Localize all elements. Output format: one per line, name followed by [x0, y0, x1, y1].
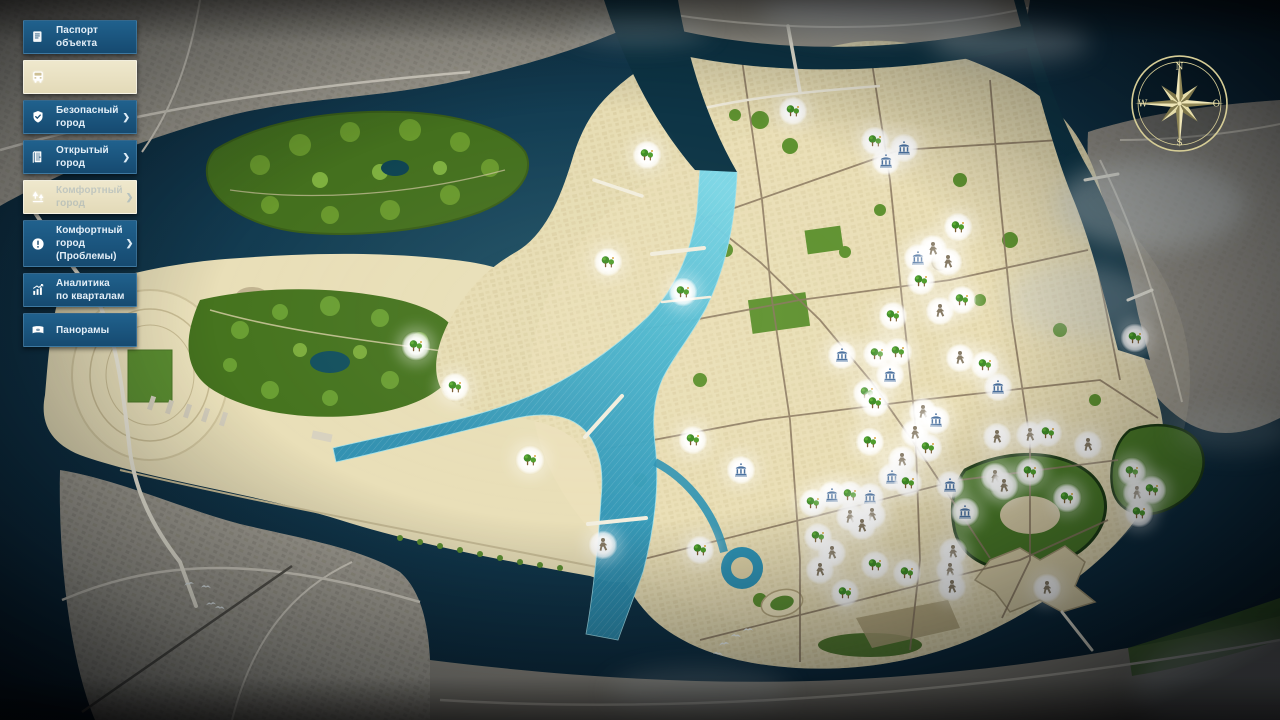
chevron-right-icon: ❯ — [123, 192, 135, 203]
compass-west-label: W — [1138, 100, 1148, 110]
panorama-icon — [31, 321, 51, 339]
map-marker-tree[interactable] — [515, 445, 545, 475]
map-marker-tree[interactable] — [778, 96, 808, 126]
compass-east-label: O — [1213, 100, 1220, 110]
map-marker-tree[interactable] — [906, 266, 936, 296]
map-marker-tree[interactable] — [668, 277, 698, 307]
map-marker-pavilion[interactable] — [950, 497, 980, 527]
map-marker-tree[interactable] — [1052, 483, 1082, 513]
trees-icon — [31, 188, 51, 206]
map-marker-tree[interactable] — [893, 468, 923, 498]
bus-icon — [31, 68, 51, 86]
sidebar-item-label: Комфортный город(Проблемы) — [51, 224, 123, 263]
bar-chart-icon — [31, 281, 51, 299]
shield-check-icon — [31, 108, 51, 126]
compass: N W O S — [1129, 53, 1230, 154]
sidebar-item-comfort-city[interactable]: Комфортный город❯ — [23, 180, 137, 214]
map-marker-person[interactable] — [847, 511, 877, 541]
map-marker-person[interactable] — [925, 296, 955, 326]
map-marker-tree[interactable] — [440, 372, 470, 402]
map-marker-person[interactable] — [1073, 430, 1103, 460]
bird-icon — [214, 603, 227, 612]
map-marker-pavilion[interactable] — [935, 470, 965, 500]
sidebar-item-object-passport[interactable]: Паспорт объекта — [23, 20, 137, 54]
map-marker-tree[interactable] — [678, 425, 708, 455]
open-door-icon — [31, 148, 51, 166]
map-marker-tree[interactable] — [401, 331, 431, 361]
sidebar: Паспорт объектаБезопасный город❯Открытый… — [23, 20, 137, 347]
sidebar-item-label: Безопасный город — [51, 104, 119, 130]
bird-icon — [711, 649, 724, 658]
sidebar-item-safe-city[interactable]: Безопасный город❯ — [23, 100, 137, 134]
sidebar-item-analytics-by-blocks[interactable]: Аналитикапо кварталам — [23, 273, 137, 307]
compass-south-label: S — [1176, 138, 1182, 148]
map-marker-tree[interactable] — [860, 388, 890, 418]
map-marker-person[interactable] — [1032, 573, 1062, 603]
sidebar-item-label: Комфортный город — [51, 184, 123, 210]
bird-icon — [200, 582, 213, 590]
map-marker-tree[interactable] — [943, 212, 973, 242]
sidebar-item-comfort-city-problems[interactable]: Комфортный город(Проблемы)❯ — [23, 220, 137, 267]
sidebar-item-label: Аналитикапо кварталам — [51, 277, 131, 303]
compass-north-label: N — [1176, 63, 1184, 73]
map-marker-person[interactable] — [588, 530, 618, 560]
sidebar-item-open-city[interactable]: Открытый город❯ — [23, 140, 137, 174]
map-marker-pavilion[interactable] — [726, 455, 756, 485]
bird-icon — [742, 626, 754, 634]
map-marker-tree[interactable] — [1124, 498, 1154, 528]
map-marker-tree[interactable] — [1015, 457, 1045, 487]
map-marker-tree[interactable] — [685, 535, 715, 565]
map-marker-tree[interactable] — [830, 578, 860, 608]
map-marker-tree[interactable] — [855, 427, 885, 457]
map-marker-tree[interactable] — [1120, 323, 1150, 353]
map-marker-tree[interactable] — [860, 550, 890, 580]
alert-icon — [31, 235, 51, 253]
markers-layer — [0, 0, 1280, 720]
bird-icon — [718, 639, 731, 648]
map-marker-pavilion[interactable] — [827, 340, 857, 370]
map-marker-person[interactable] — [937, 572, 967, 602]
sidebar-item-label: Панорамы — [51, 324, 131, 337]
map-marker-person[interactable] — [933, 247, 963, 277]
sidebar-item-label: Паспорт объекта — [51, 24, 131, 50]
sidebar-item-label: Открытый город — [51, 144, 119, 170]
map-marker-tree[interactable] — [1033, 418, 1063, 448]
map-marker-tree[interactable] — [892, 558, 922, 588]
map-marker-tree[interactable] — [913, 433, 943, 463]
map-marker-tree[interactable] — [632, 140, 662, 170]
bird-icon — [182, 579, 195, 588]
map-marker-pavilion[interactable] — [983, 372, 1013, 402]
map-marker-pavilion[interactable] — [889, 133, 919, 163]
sidebar-item-panoramas[interactable]: Панорамы — [23, 313, 137, 347]
document-icon — [31, 28, 51, 46]
chevron-right-icon: ❯ — [119, 152, 131, 163]
bird-icon — [730, 631, 743, 639]
city-map-app: N W O S Паспорт объектаБезопасный город❯… — [0, 0, 1280, 720]
chevron-right-icon: ❯ — [123, 238, 135, 249]
map-marker-person[interactable] — [982, 422, 1012, 452]
map-marker-person[interactable] — [805, 555, 835, 585]
chevron-right-icon: ❯ — [119, 112, 131, 123]
map-marker-tree[interactable] — [593, 247, 623, 277]
sidebar-item-transport[interactable] — [23, 60, 137, 94]
map-marker-tree[interactable] — [878, 301, 908, 331]
